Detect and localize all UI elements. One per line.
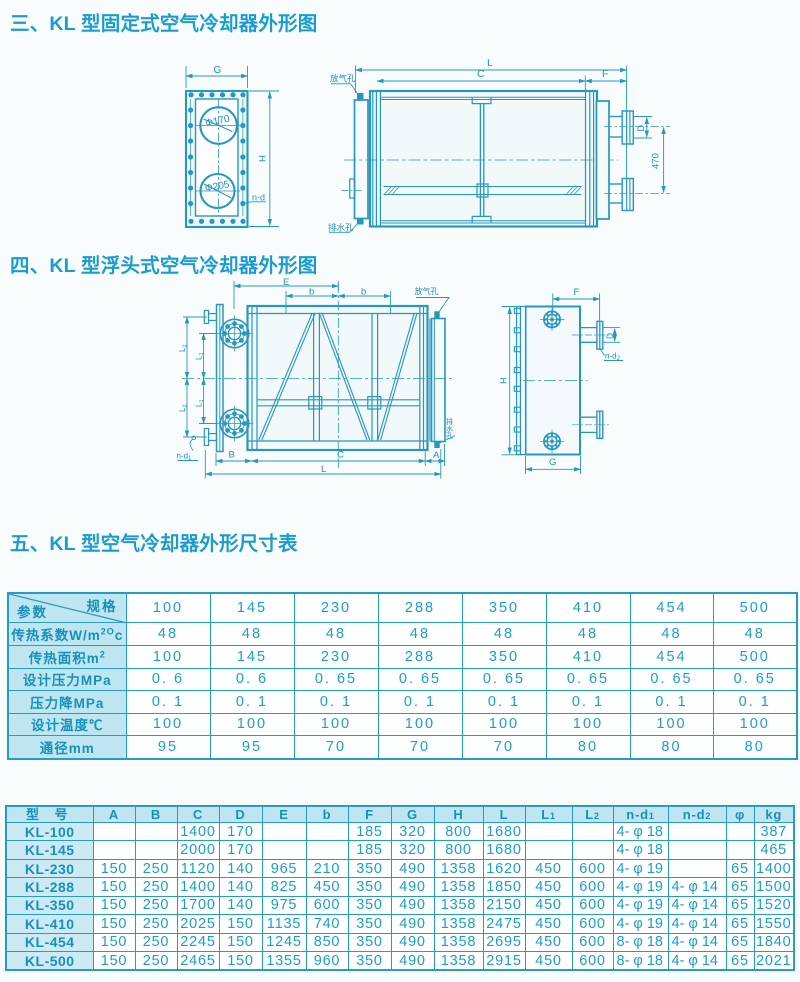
svg-text:n-d2: n-d2	[605, 352, 621, 363]
svg-text:H: H	[258, 155, 269, 162]
svg-text:放气孔: 放气孔	[330, 74, 356, 84]
svg-text:D: D	[636, 125, 646, 132]
svg-text:放气孔: 放气孔	[415, 286, 439, 296]
svg-text:F: F	[574, 287, 580, 298]
svg-text:A: A	[433, 450, 440, 461]
svg-text:n-d: n-d	[252, 193, 265, 203]
svg-text:C: C	[337, 450, 344, 461]
svg-text:F: F	[602, 68, 608, 80]
svg-text:L: L	[321, 464, 326, 475]
svg-text:L: L	[487, 57, 493, 69]
svg-text:b: b	[309, 287, 314, 298]
svg-text:B: B	[229, 450, 235, 461]
svg-text:b: b	[361, 287, 366, 298]
svg-text:G: G	[549, 457, 556, 468]
svg-text:L1: L1	[195, 399, 206, 407]
svg-text:G: G	[214, 65, 222, 76]
svg-text:L2: L2	[178, 344, 189, 352]
svg-text:L2: L2	[178, 404, 189, 412]
svg-text:n-d1: n-d1	[177, 452, 193, 463]
svg-text:470: 470	[651, 153, 662, 169]
svg-text:E: E	[283, 277, 289, 288]
svg-text:H: H	[499, 378, 509, 385]
svg-text:C: C	[477, 68, 485, 80]
svg-text:L1: L1	[195, 352, 206, 360]
svg-text:D: D	[605, 333, 615, 339]
